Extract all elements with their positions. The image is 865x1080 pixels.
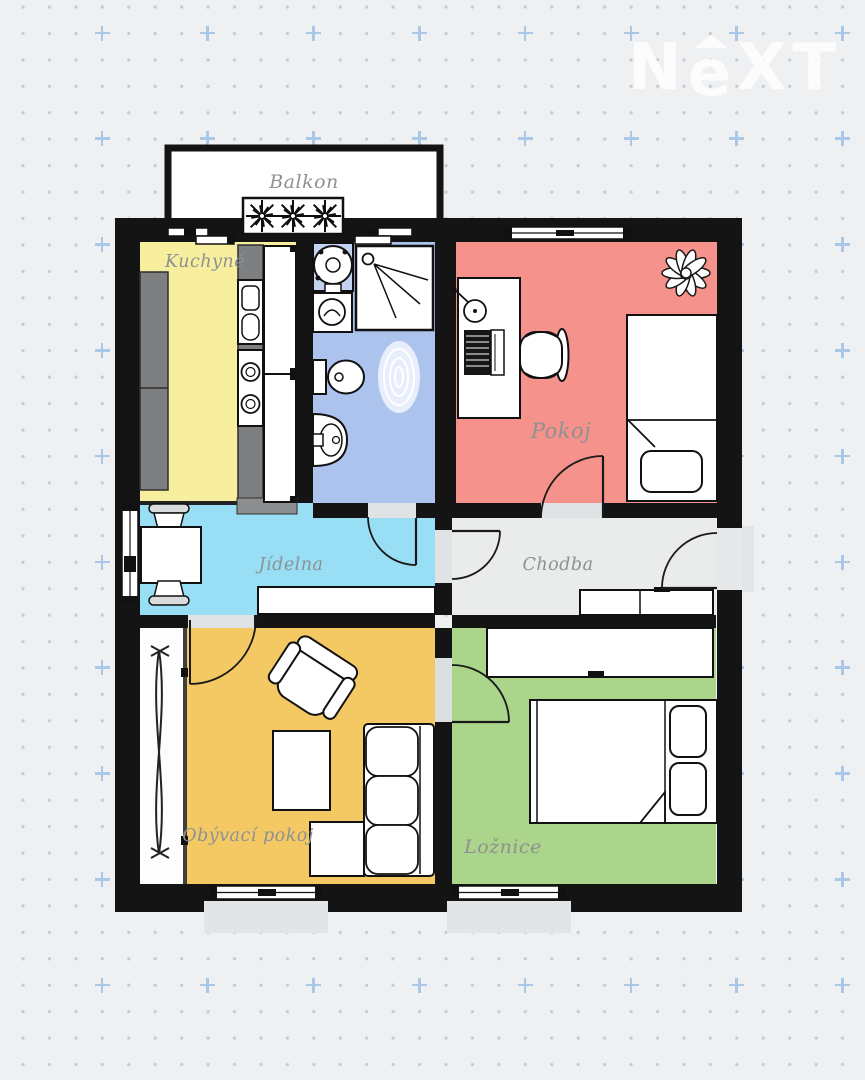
entrance-exterior-strip [742,526,754,592]
label-balkon: Balkon [268,171,339,193]
single-bed [627,315,717,501]
logo-letter-e: e [688,37,737,111]
sofa-icon [364,724,434,876]
wall-mid-lower [140,615,190,628]
washing-machine-icon [313,243,353,293]
dining-window-icon [122,505,138,602]
logo-letters-xt: XT [737,36,842,100]
ottoman [310,822,364,876]
label-obyvaci-pokoj: Obývací pokoj [182,826,314,846]
threshold-pokoj-door [541,503,603,518]
threshold-bedroom-door [435,658,452,722]
pillow [641,451,702,492]
window-sill [447,901,571,933]
window-sill [204,901,328,933]
balcony-planter [243,198,343,234]
pillow [670,763,706,815]
floorplan-svg: Balkon Kuchyně Pokoj Jídelna Chodba Obýv… [0,0,865,1080]
double-bed [530,700,717,823]
stove-icon [238,350,263,426]
logo-letter-n: N [628,36,688,100]
wardrobe-tick [588,671,604,677]
wall-bathroom-pokoj [435,242,456,503]
wall-mid-upper [313,503,368,518]
wall-vertical-mid [435,628,452,658]
laptop-icon [464,330,504,375]
label-jidelna: Jídelna [256,555,324,575]
pokoj-window-icon [505,227,630,239]
kitchen-cabinet [264,374,296,502]
wall-mid-lower [452,615,716,628]
logo-letter-e-wrap: e [688,36,737,100]
shower-icon [356,246,433,330]
hallway-furniture [580,587,713,615]
wall-vertical-mid [435,722,452,884]
threshold-entrance-door [716,528,742,590]
dining-table [141,527,201,583]
toilet-icon [313,360,364,394]
label-pokoj: Pokoj [530,419,591,443]
wall-mid-upper [456,503,541,518]
wall-mid-upper [416,503,456,518]
coffee-table [273,731,330,810]
cabinet-handle [290,246,296,252]
hall-shelf [580,590,713,615]
label-loznice: Ložnice [463,836,542,858]
wall-mid-upper [603,503,717,518]
wardrobe [487,628,713,677]
wall-vertical-mid [435,583,452,615]
boiler-icon [313,293,352,332]
kitchen-counter-left [140,272,168,490]
bedroom-window-icon [452,886,565,899]
pillow [670,706,706,757]
wall-mid-lower [254,615,435,628]
threshold-living-door [188,615,254,628]
closet-handle [181,668,188,677]
bath-mat [378,341,420,413]
label-chodba: Chodba [522,555,593,575]
sideboard [258,587,435,614]
cabinet-handle [290,374,296,380]
cabinet-handle [290,496,296,502]
wall-kitchen-bathroom [296,242,313,503]
cabinet-handle [290,368,296,374]
threshold-bathroom-door [368,503,416,518]
label-kuchyne: Kuchyně [164,252,245,272]
office-chair-icon [520,329,569,381]
threshold-hall-door [435,530,452,583]
next-logo: NeXT [628,36,842,100]
living-window-icon [210,886,322,899]
closet-strip-floor [140,628,184,884]
wall-vertical-mid [435,517,452,530]
kitchen-cabinet [264,246,296,374]
kitchen-sink-icon [238,280,263,344]
